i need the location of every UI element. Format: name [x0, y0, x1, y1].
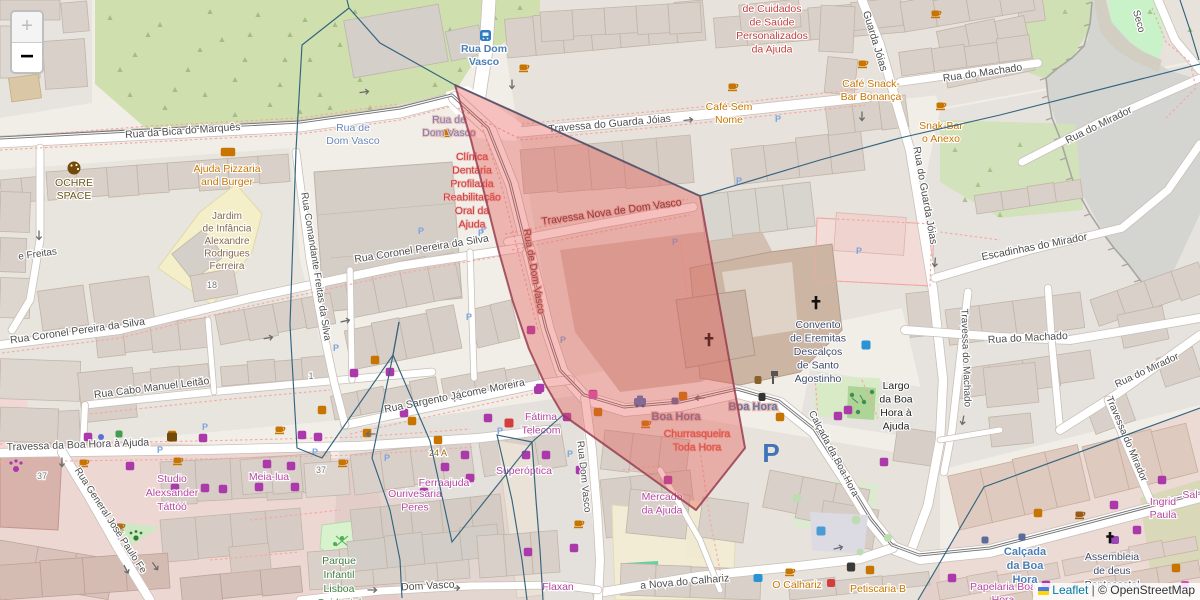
svg-text:FátimaTelecom: FátimaTelecom [521, 411, 560, 437]
svg-text:37: 37 [316, 465, 326, 475]
svg-text:P: P [384, 453, 390, 463]
svg-text:P: P [775, 114, 781, 124]
svg-text:P: P [418, 226, 424, 236]
svg-text:O Calhariz: O Calhariz [772, 579, 822, 591]
svg-text:P: P [762, 438, 779, 468]
svg-text:18: 18 [207, 280, 217, 290]
svg-text:1: 1 [308, 371, 313, 381]
svg-text:P: P [497, 426, 503, 436]
svg-text:Ferraajuda: Ferraajuda [419, 477, 470, 489]
svg-text:Ajuda Pizzariaand Burger: Ajuda Pizzariaand Burger [193, 163, 260, 188]
svg-text:P: P [202, 422, 208, 432]
svg-text:P: P [466, 312, 472, 322]
svg-text:Petiscaria B: Petiscaria B [850, 583, 906, 595]
svg-text:Meia-lua: Meia-lua [249, 471, 289, 483]
svg-text:P: P [157, 445, 163, 455]
svg-text:Largoda BoaHora àAjuda: Largoda BoaHora àAjuda [879, 380, 912, 433]
svg-text:Café Snack-Bar Bonança: Café Snack-Bar Bonança [841, 78, 902, 103]
svg-text:P: P [333, 343, 339, 353]
svg-text:Flaxan: Flaxan [542, 581, 574, 593]
svg-text:IngridPaula: IngridPaula [1150, 496, 1177, 521]
svg-text:Sal: Sal [1182, 489, 1197, 501]
svg-text:37: 37 [37, 471, 47, 481]
svg-text:Conventode EremitasDescalçosde: Conventode EremitasDescalçosde SantoAgos… [790, 319, 846, 385]
svg-text:P: P [856, 246, 862, 256]
svg-text:P: P [567, 449, 573, 459]
svg-text:OCHRESPACE: OCHRESPACE [55, 177, 93, 202]
